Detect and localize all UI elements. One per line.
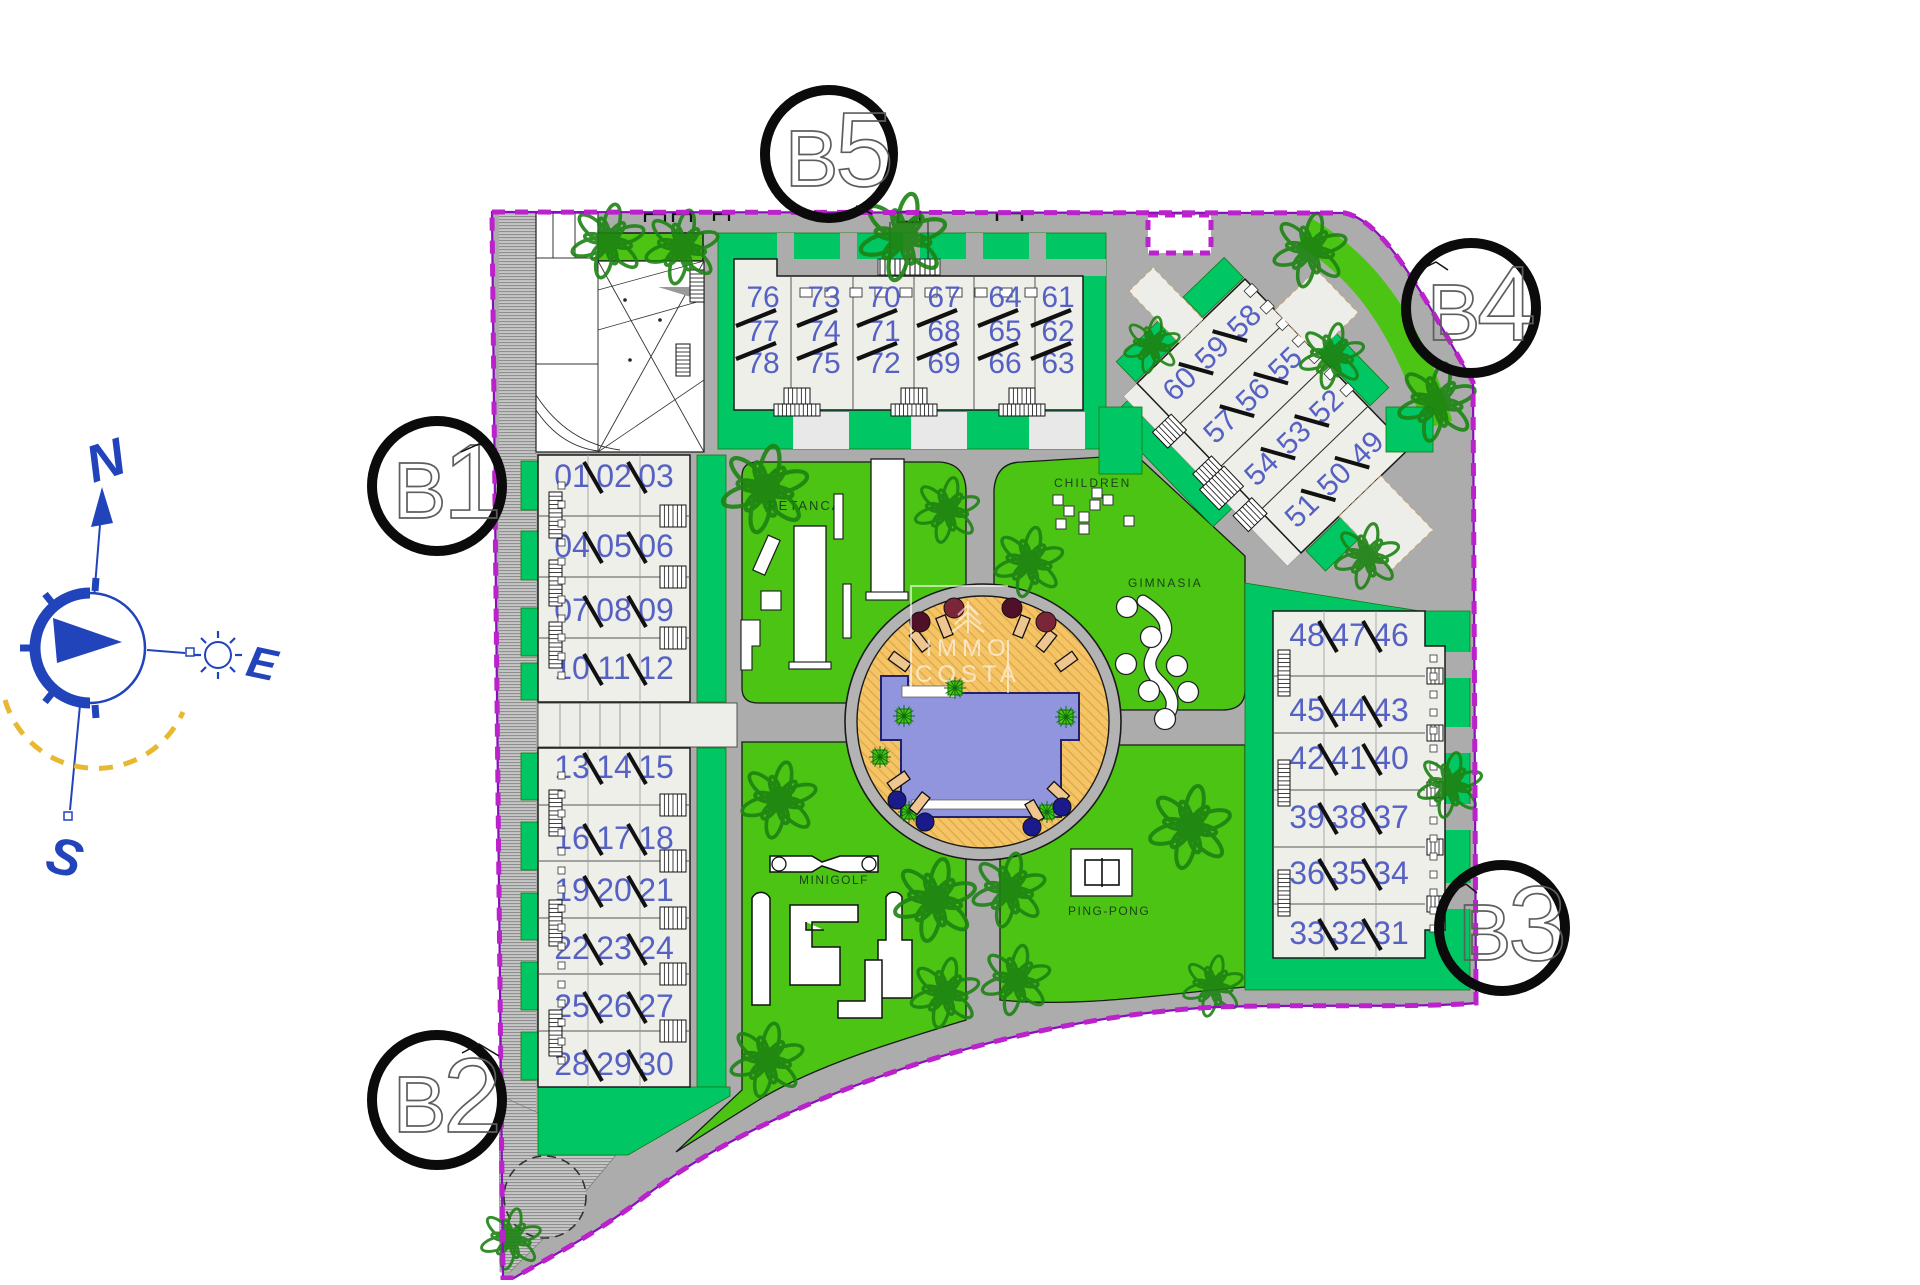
svg-text:2: 2 (443, 1037, 502, 1155)
svg-text:PETANCA: PETANCA (768, 498, 842, 513)
svg-text:PING-PONG: PING-PONG (1068, 904, 1150, 918)
svg-text:1: 1 (443, 423, 502, 541)
svg-text:11: 11 (597, 650, 630, 686)
svg-text:COSTA: COSTA (915, 661, 1021, 688)
svg-text:IMMO: IMMO (925, 635, 1010, 662)
svg-text:MINIGOLF: MINIGOLF (799, 873, 869, 887)
svg-text:B: B (1427, 268, 1480, 357)
svg-text:B: B (393, 1060, 446, 1149)
svg-text:B: B (393, 446, 446, 535)
svg-text:B: B (785, 114, 838, 203)
svg-text:4: 4 (1477, 245, 1536, 363)
svg-text:GIMNASIA: GIMNASIA (1128, 576, 1203, 590)
svg-text:B: B (1458, 888, 1511, 977)
svg-text:3: 3 (1508, 865, 1567, 983)
svg-text:5: 5 (835, 91, 894, 209)
